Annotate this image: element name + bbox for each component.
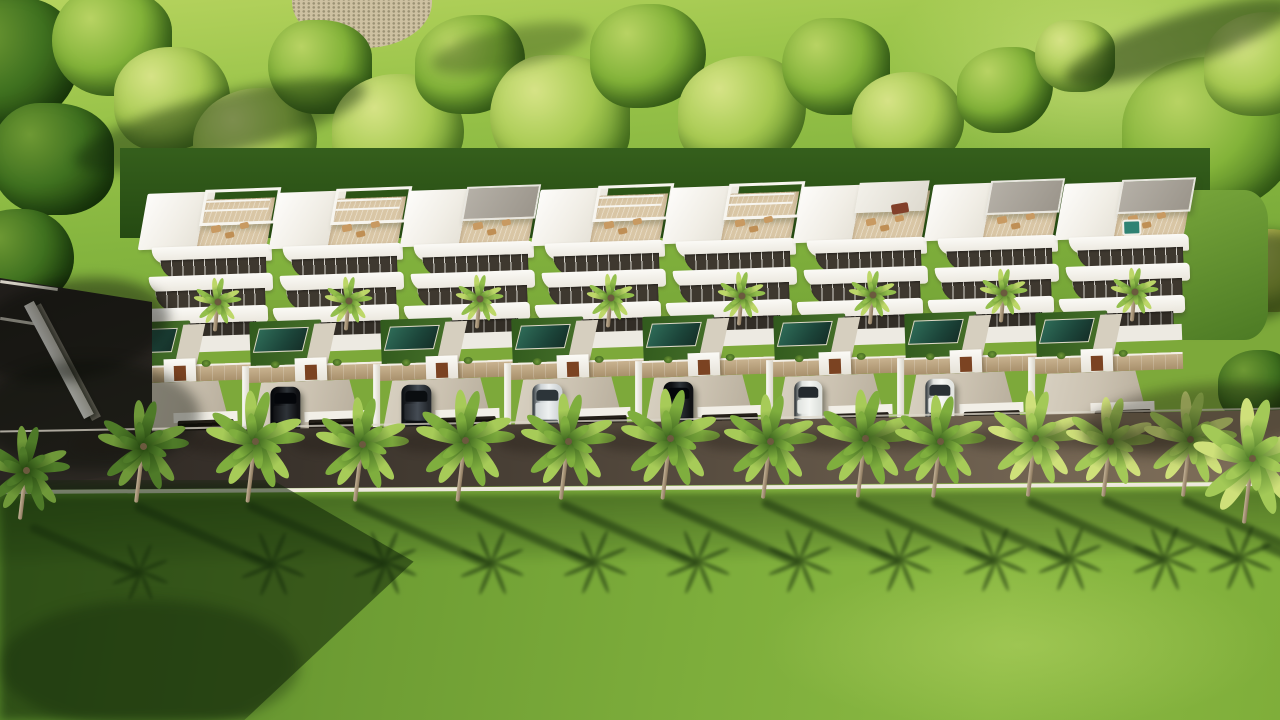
jacuzzi [1122, 219, 1142, 236]
swimming-pool [908, 319, 964, 345]
swimming-pool [384, 325, 440, 351]
car-roof [797, 400, 819, 414]
car-roof [666, 401, 690, 417]
car-windshield [405, 391, 427, 402]
car-roof [273, 406, 297, 422]
car-windshield [274, 393, 296, 404]
entry-door [305, 365, 318, 380]
pergola [1116, 177, 1196, 214]
car-roof [404, 404, 428, 420]
swimming-pool [646, 322, 702, 348]
swimming-pool [1039, 318, 1095, 344]
car-windshield [929, 385, 950, 396]
car-roof [928, 398, 951, 413]
entry-door [436, 363, 449, 378]
entry-door [960, 357, 973, 372]
entry-door [174, 366, 187, 381]
swimming-pool [515, 324, 571, 350]
sun-highlight [760, 560, 1280, 720]
swimming-pool [253, 327, 309, 353]
entry-door [1091, 356, 1104, 371]
swimming-pool [777, 321, 833, 347]
aerial-villa-render [0, 0, 1280, 720]
car-windshield [798, 387, 818, 398]
entry-door [698, 360, 711, 375]
entry-door [829, 359, 842, 374]
car-windshield [536, 390, 558, 401]
car-roof [535, 403, 559, 419]
lawn-shadow-corner [0, 600, 300, 720]
entry-door [567, 362, 580, 377]
car-windshield [667, 388, 689, 399]
